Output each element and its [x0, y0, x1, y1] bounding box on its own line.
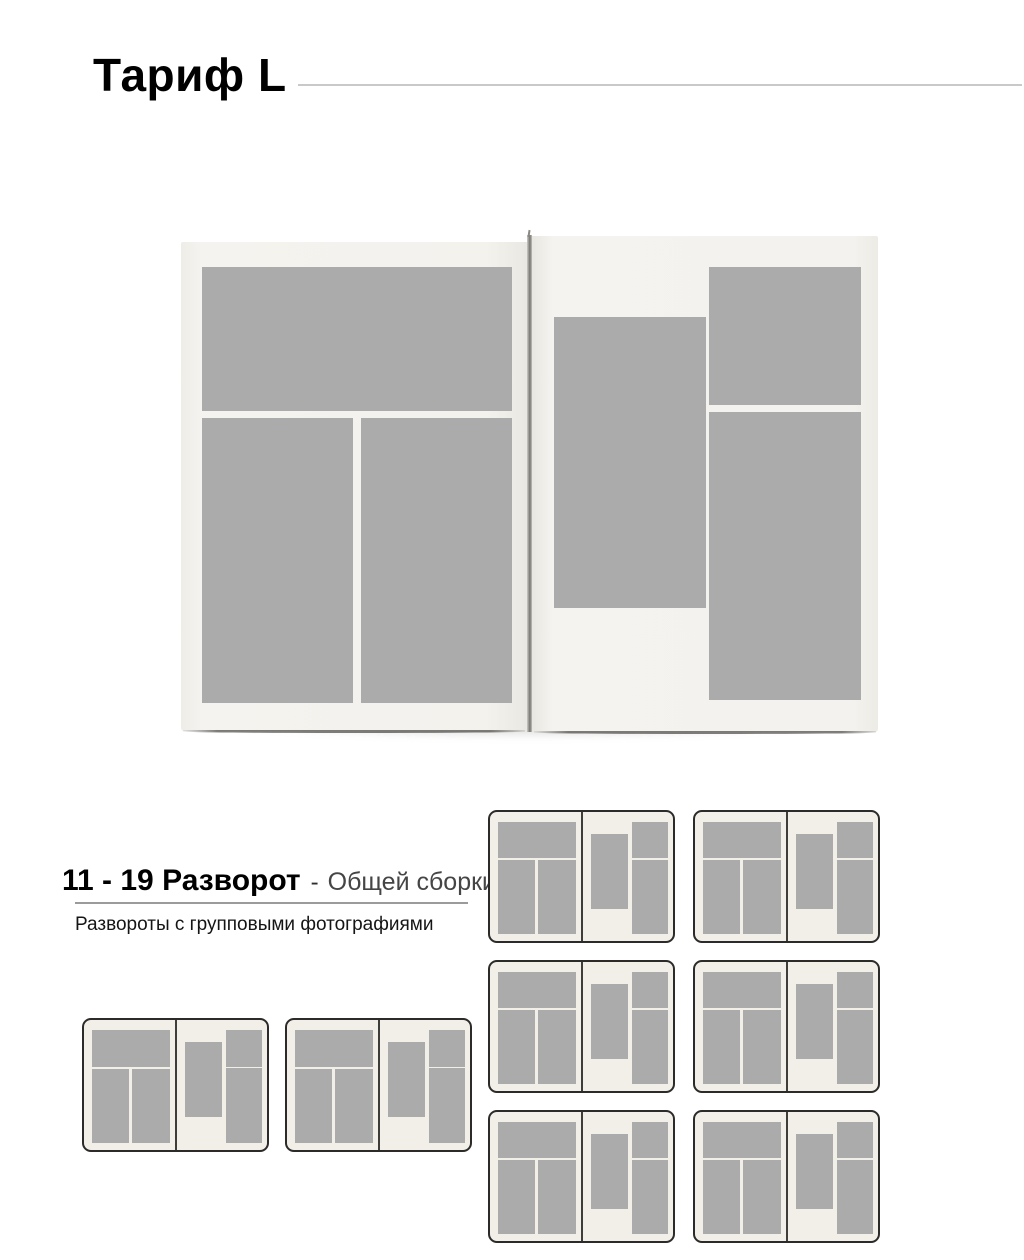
card-right-page — [583, 962, 674, 1091]
card-left-page — [490, 812, 581, 941]
photo-placeholder — [837, 1160, 873, 1234]
photo-placeholder — [185, 1042, 223, 1117]
photo-placeholder — [226, 1068, 262, 1143]
photo-placeholder — [538, 860, 576, 934]
book-spread-mockup — [180, 233, 878, 733]
card-right-page — [583, 812, 674, 941]
photo-placeholder — [335, 1069, 373, 1143]
photo-placeholder — [703, 1010, 740, 1084]
photo-placeholder — [703, 1122, 782, 1159]
photo-placeholder — [703, 860, 740, 934]
spread-thumbnail — [693, 810, 880, 943]
photo-placeholder — [632, 972, 668, 1009]
card-left-page — [490, 1112, 581, 1241]
spread-thumbnail — [693, 1110, 880, 1243]
page-title: Тариф L — [93, 52, 287, 98]
section-rule — [75, 902, 468, 904]
photo-placeholder — [92, 1030, 171, 1067]
book-right-page — [532, 236, 878, 732]
card-left-page — [695, 962, 786, 1091]
photo-placeholder — [92, 1069, 129, 1143]
photo-placeholder — [796, 834, 834, 909]
card-right-page — [380, 1020, 471, 1150]
photo-placeholder — [743, 1160, 781, 1234]
photo-placeholder — [632, 822, 668, 859]
photo-placeholder — [538, 1160, 576, 1234]
spread-thumbnail — [488, 1110, 675, 1243]
heading-separator: - — [311, 869, 319, 897]
spread-thumbnail — [488, 810, 675, 943]
photo-placeholder — [498, 822, 577, 859]
photo-placeholder — [632, 1160, 668, 1234]
document-page: Тариф L 11 - 19 Разворот - Общей сборки … — [0, 0, 1024, 1260]
spread-thumbnail — [693, 960, 880, 1093]
thumbnail-row-left — [82, 1018, 472, 1152]
photo-placeholder — [388, 1042, 426, 1117]
photo-placeholder — [591, 834, 629, 909]
photo-placeholder — [703, 822, 782, 859]
card-right-page — [788, 812, 879, 941]
assembly-type-label: Общей сборки — [328, 868, 496, 897]
photo-placeholder — [837, 822, 873, 859]
photo-placeholder-top-right — [709, 267, 861, 405]
photo-placeholder — [498, 1160, 535, 1234]
photo-placeholder — [837, 972, 873, 1009]
photo-placeholder-center-left-tall — [554, 317, 706, 608]
section-heading: 11 - 19 Разворот - Общей сборки — [62, 864, 496, 898]
photo-placeholder-bottom-left — [202, 418, 353, 703]
photo-placeholder — [591, 984, 629, 1059]
card-left-page — [84, 1020, 175, 1150]
photo-placeholder — [429, 1030, 465, 1067]
photo-placeholder — [837, 1010, 873, 1084]
card-right-page — [583, 1112, 674, 1241]
photo-placeholder — [632, 1122, 668, 1159]
photo-placeholder — [703, 972, 782, 1009]
photo-placeholder — [132, 1069, 170, 1143]
photo-placeholder-top-wide — [202, 267, 512, 411]
card-right-page — [788, 962, 879, 1091]
title-rule — [298, 84, 1022, 86]
photo-placeholder — [538, 1010, 576, 1084]
photo-placeholder — [632, 1010, 668, 1084]
card-right-page — [177, 1020, 268, 1150]
photo-placeholder — [796, 1134, 834, 1209]
card-left-page — [490, 962, 581, 1091]
spread-thumbnail — [285, 1018, 472, 1152]
spread-range-label: 11 - 19 Разворот — [62, 864, 301, 898]
photo-placeholder — [703, 1160, 740, 1234]
card-left-page — [695, 1112, 786, 1241]
photo-placeholder — [743, 860, 781, 934]
photo-placeholder — [429, 1068, 465, 1143]
thumbnail-grid-right — [488, 810, 880, 1243]
photo-placeholder — [295, 1030, 374, 1067]
photo-placeholder — [632, 860, 668, 934]
photo-placeholder — [837, 1122, 873, 1159]
book-left-page — [181, 242, 527, 731]
photo-placeholder-bottom-right — [361, 418, 512, 703]
photo-placeholder — [796, 984, 834, 1059]
photo-placeholder — [837, 860, 873, 934]
photo-placeholder — [295, 1069, 332, 1143]
photo-placeholder — [498, 972, 577, 1009]
card-left-page — [287, 1020, 378, 1150]
photo-placeholder — [498, 1010, 535, 1084]
photo-placeholder — [591, 1134, 629, 1209]
card-right-page — [788, 1112, 879, 1241]
photo-placeholder-bottom-right-tall — [709, 412, 861, 700]
spread-thumbnail — [82, 1018, 269, 1152]
photo-placeholder — [226, 1030, 262, 1067]
card-left-page — [695, 812, 786, 941]
photo-placeholder — [743, 1010, 781, 1084]
book-spine — [527, 235, 532, 732]
spread-thumbnail — [488, 960, 675, 1093]
photo-placeholder — [498, 860, 535, 934]
section-description: Развороты с групповыми фотографиями — [75, 914, 433, 936]
photo-placeholder — [498, 1122, 577, 1159]
